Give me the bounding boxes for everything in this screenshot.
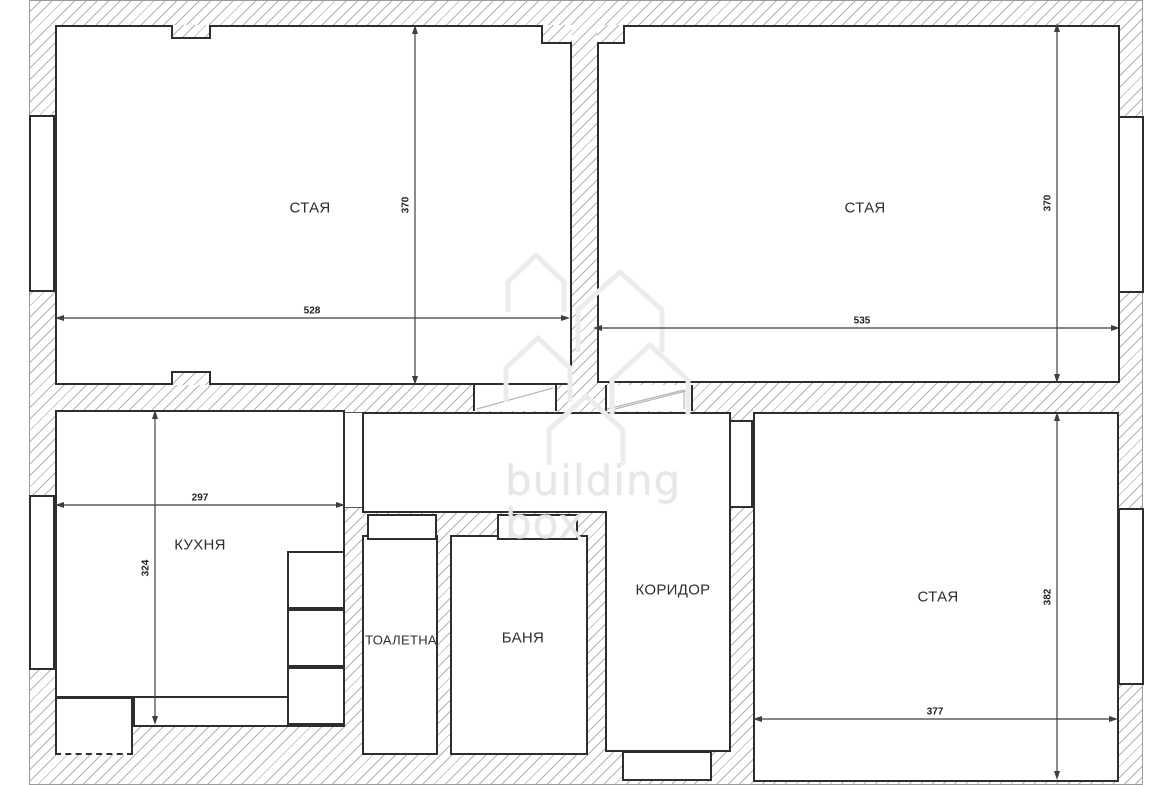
floor-plan-canvas: building box 528 370 535 370 297 32 [0,0,1170,785]
dimension-label-room-top-right-width: 535 [854,316,871,327]
dimension-label-room-bottom-right-width: 377 [927,707,944,718]
room-label-bottom-right: СТАЯ [917,589,958,606]
dimension-label-kitchen-height: 324 [141,560,152,577]
room-label-toilet: ТОАЛЕТНА [365,633,437,648]
room-label-top-right: СТАЯ [844,200,885,217]
dimension-label-room-top-left-height: 370 [401,197,412,214]
dimension-label-kitchen-width: 297 [192,493,209,504]
room-label-corridor: КОРИДОР [636,582,711,599]
room-label-top-left: СТАЯ [289,200,330,217]
dimension-label-room-top-right-height: 370 [1043,195,1054,212]
dimension-label-room-bottom-right-height: 382 [1043,589,1054,606]
room-label-bath: БАНЯ [502,630,544,647]
dimension-label-room-top-left-width: 528 [304,306,321,317]
room-label-kitchen: КУХНЯ [174,537,226,554]
dimension-lines [0,0,1170,785]
